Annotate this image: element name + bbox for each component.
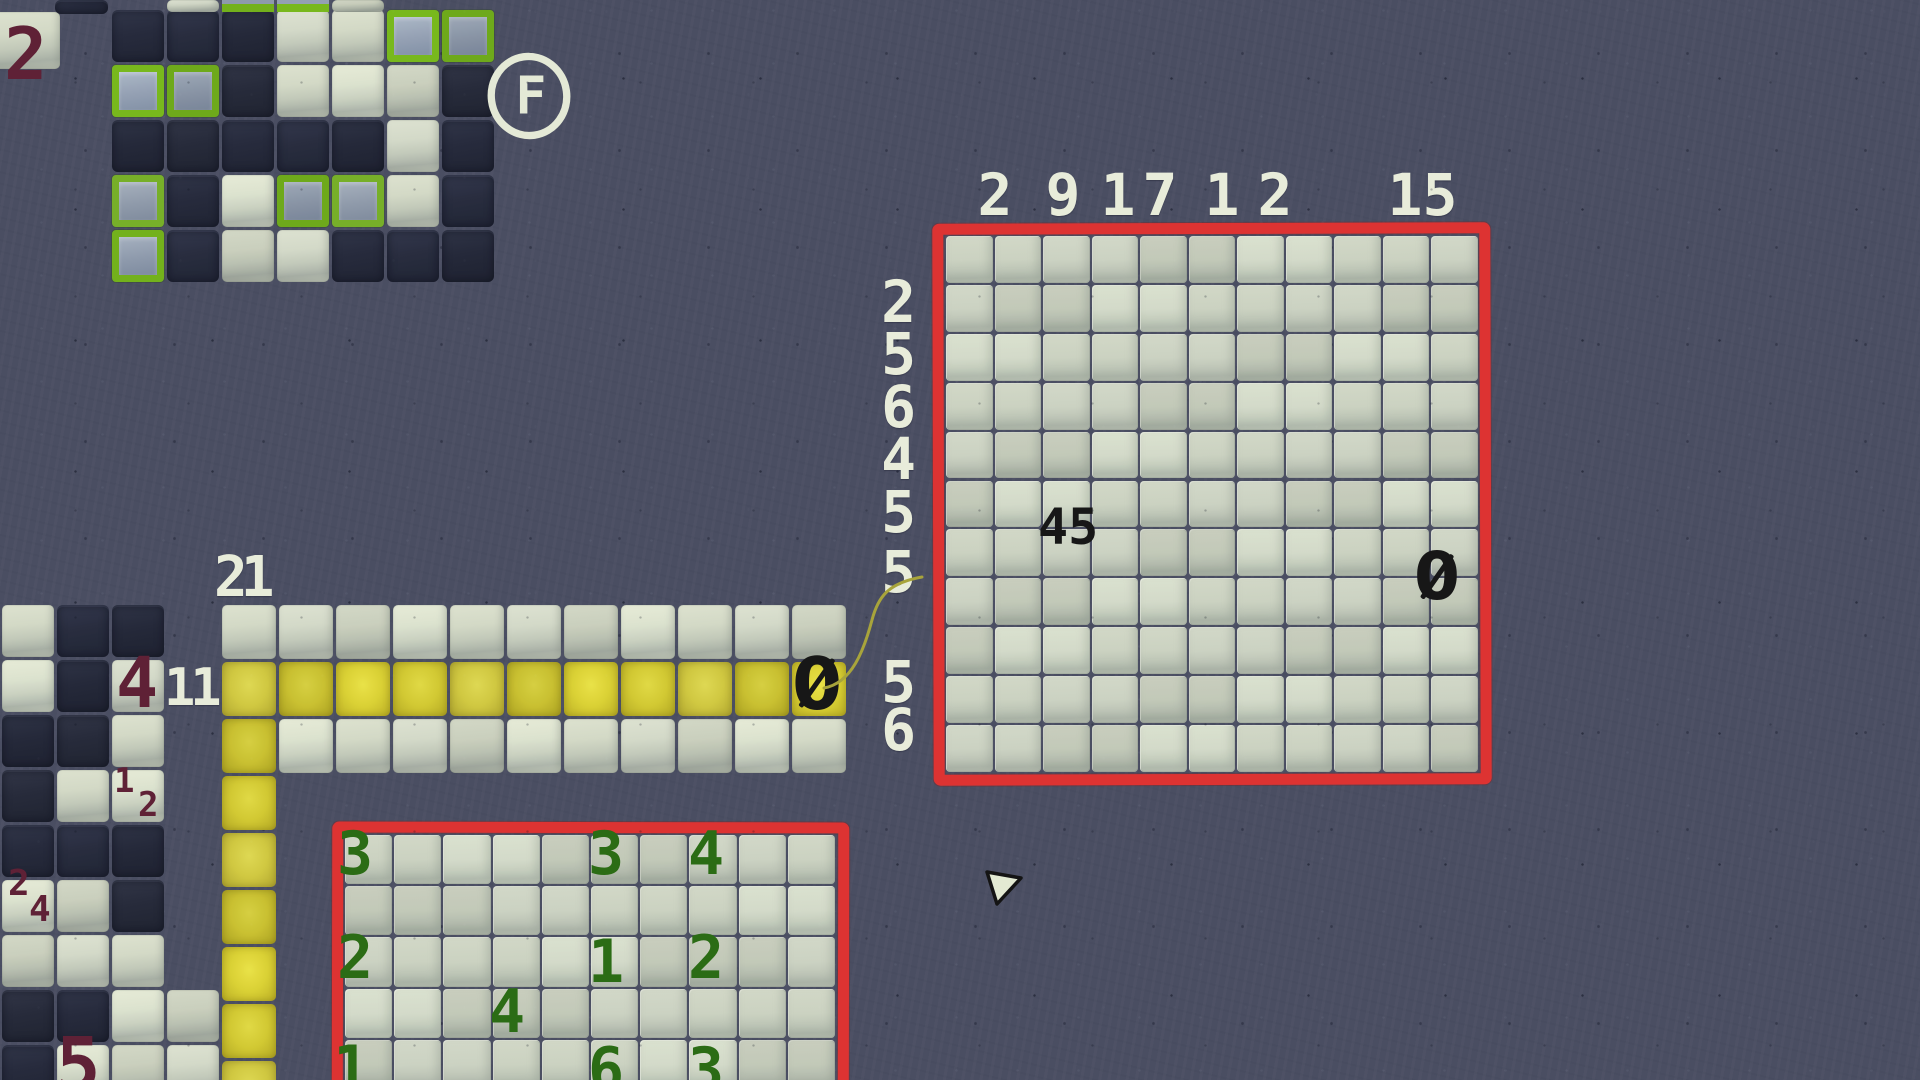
strip-board-cell-r0c8[interactable]: [678, 605, 732, 659]
big-board-cell-r5c4[interactable]: [1140, 481, 1187, 528]
strip-board-cell-r2c2[interactable]: [336, 719, 390, 773]
strip-board-cell-r2c10[interactable]: [792, 719, 846, 773]
bottom-board-cell-r1c9[interactable]: [788, 886, 835, 935]
big-board-cell-r2c1[interactable]: [995, 334, 1042, 381]
left-board-cell-r4c2[interactable]: [112, 825, 164, 877]
bottom-board-cell-r1c6[interactable]: [640, 886, 687, 935]
big-board-cell-r6c4[interactable]: [1140, 529, 1187, 576]
big-board-cell-r5c0[interactable]: [946, 481, 993, 528]
big-board-cell-r10c1[interactable]: [995, 725, 1042, 772]
strip-board-cell-r2c9[interactable]: [735, 719, 789, 773]
left-board-cell-r8c0[interactable]: [2, 1045, 54, 1080]
bottom-board-cell-r1c8[interactable]: [739, 886, 786, 935]
big-board-cell-r9c5[interactable]: [1189, 676, 1236, 723]
top-left-board-cell-r3c5[interactable]: [387, 175, 439, 227]
top-left-board-cell-r0c4[interactable]: [332, 10, 384, 62]
yellow-path-column-cell-r3c0[interactable]: [222, 947, 276, 1001]
top-left-board-extra-4[interactable]: [277, 0, 329, 12]
top-left-board-cell-r4c0[interactable]: [112, 230, 164, 282]
top-left-board-cell-r3c6[interactable]: [442, 175, 494, 227]
left-board-cell-r7c0[interactable]: [2, 990, 54, 1042]
bottom-board-cell-r2c6[interactable]: [640, 937, 687, 986]
big-board-cell-r0c5[interactable]: [1189, 236, 1236, 283]
bottom-board-cell-r4c8[interactable]: [739, 1040, 786, 1080]
left-board-cell-r0c0[interactable]: [2, 605, 54, 657]
big-board-cell-r3c7[interactable]: [1286, 383, 1333, 430]
bottom-board-cell-r3c0[interactable]: [345, 989, 392, 1038]
strip-board-cell-r1c0[interactable]: [222, 662, 276, 716]
big-board-cell-r1c7[interactable]: [1286, 285, 1333, 332]
clue-4-left-board: 4: [116, 648, 158, 718]
big-board-cell-r2c5[interactable]: [1189, 334, 1236, 381]
left-board-cell-r1c0[interactable]: [2, 660, 54, 712]
big-board-cell-r3c8[interactable]: [1334, 383, 1381, 430]
bottom-board-cell-r1c2[interactable]: [443, 886, 490, 935]
big-board-cell-r2c9[interactable]: [1383, 334, 1430, 381]
clue-pair-1: 1: [114, 764, 134, 798]
strip-board-cell-r1c5[interactable]: [507, 662, 561, 716]
top-left-board-cell-r0c2[interactable]: [222, 10, 274, 62]
bottom-board-cell-r2c2[interactable]: [443, 937, 490, 986]
big-board-cell-r5c9[interactable]: [1383, 481, 1430, 528]
top-left-board-cell-r1c4[interactable]: [332, 65, 384, 117]
left-board-cell-r1c1[interactable]: [57, 660, 109, 712]
strip-board-cell-r1c2[interactable]: [336, 662, 390, 716]
top-left-board-cell-r4c6[interactable]: [442, 230, 494, 282]
strip-board-cell-r1c9[interactable]: [735, 662, 789, 716]
big-board-left-clue-5: 5: [872, 543, 916, 601]
big-board-cell-r0c2[interactable]: [1043, 236, 1090, 283]
top-left-board-cell-r1c5[interactable]: [387, 65, 439, 117]
big-board-cell-r8c3[interactable]: [1092, 627, 1139, 674]
top-left-board-cell-r2c1[interactable]: [167, 120, 219, 172]
bottom-board-cell-r1c4[interactable]: [542, 886, 589, 935]
big-board-cell-r10c9[interactable]: [1383, 725, 1430, 772]
bottom-board-cell-r3c2[interactable]: [443, 989, 490, 1038]
big-board-top-clue-4: 1: [1200, 166, 1244, 224]
big-board-top-clue-2: 1: [1096, 166, 1140, 224]
big-board-cell-r6c1[interactable]: [995, 529, 1042, 576]
big-board-cell-r7c6[interactable]: [1237, 578, 1284, 625]
clue-11-strip-row: 11: [164, 662, 217, 714]
strip-board-cell-r0c0[interactable]: [222, 605, 276, 659]
flag-button-circle-icon: F: [483, 49, 575, 143]
bottom-board-cell-r2c4[interactable]: [542, 937, 589, 986]
yellow-path-column-cell-r2c0[interactable]: [222, 890, 276, 944]
strip-board-cell-r1c8[interactable]: [678, 662, 732, 716]
big-board-cell-r10c5[interactable]: [1189, 725, 1236, 772]
big-board-cell-r1c1[interactable]: [995, 285, 1042, 332]
big-board-cell-r7c4[interactable]: [1140, 578, 1187, 625]
top-left-board-cell-r2c0[interactable]: [112, 120, 164, 172]
strip-board-cell-r0c7[interactable]: [621, 605, 675, 659]
strip-board-cell-r2c5[interactable]: [507, 719, 561, 773]
top-left-board-cell-r3c3[interactable]: [277, 175, 329, 227]
big-board-cell-r0c4[interactable]: [1140, 236, 1187, 283]
big-board-cell-r4c2[interactable]: [1043, 432, 1090, 479]
big-board-cell-r10c10[interactable]: [1431, 725, 1478, 772]
left-board-cell-r6c0[interactable]: [2, 935, 54, 987]
big-board-cell-r4c6[interactable]: [1237, 432, 1284, 479]
big-board-cell-r4c5[interactable]: [1189, 432, 1236, 479]
big-board-cell-r9c6[interactable]: [1237, 676, 1284, 723]
clue-3-bottom-board-r0c5: 3: [588, 824, 624, 884]
big-board-cell-r9c1[interactable]: [995, 676, 1042, 723]
big-board-cell-r1c6[interactable]: [1237, 285, 1284, 332]
left-board-cell-r6c2[interactable]: [112, 935, 164, 987]
big-board-cell-r0c0[interactable]: [946, 236, 993, 283]
left-board-cell-r2c1[interactable]: [57, 715, 109, 767]
big-board-cell-r5c8[interactable]: [1334, 481, 1381, 528]
big-board-cell-r4c7[interactable]: [1286, 432, 1333, 479]
big-board-cell-r6c0[interactable]: [946, 529, 993, 576]
big-board-left-clue-7: 6: [872, 701, 916, 759]
left-board-cell-r2c0[interactable]: [2, 715, 54, 767]
big-board-cell-r1c10[interactable]: [1431, 285, 1478, 332]
top-left-board-cell-r1c0[interactable]: [112, 65, 164, 117]
bottom-board-cell-r1c3[interactable]: [493, 886, 540, 935]
big-board-cell-r2c6[interactable]: [1237, 334, 1284, 381]
big-board-cell-r1c8[interactable]: [1334, 285, 1381, 332]
strip-board-cell-r2c6[interactable]: [564, 719, 618, 773]
big-board-cell-r1c0[interactable]: [946, 285, 993, 332]
big-board-cell-r0c8[interactable]: [1334, 236, 1381, 283]
top-left-board-cell-r2c2[interactable]: [222, 120, 274, 172]
left-board-cell-r3c0[interactable]: [2, 770, 54, 822]
bottom-board-cell-r4c6[interactable]: [640, 1040, 687, 1080]
bottom-board-cell-r4c2[interactable]: [443, 1040, 490, 1080]
left-board-cell-r8c2[interactable]: [112, 1045, 164, 1080]
left-board-cell-r3c1[interactable]: [57, 770, 109, 822]
clue-4-bottom-board-r0c7: 4: [688, 824, 724, 884]
big-board-cell-r2c2[interactable]: [1043, 334, 1090, 381]
strip-board-cell-r2c7[interactable]: [621, 719, 675, 773]
strip-board-cell-r2c8[interactable]: [678, 719, 732, 773]
strip-board-cell-r2c1[interactable]: [279, 719, 333, 773]
big-board-top-clue-7: 5: [1418, 166, 1462, 224]
bottom-board-cell-r0c3[interactable]: [493, 835, 540, 884]
strip-board-cell-r1c7[interactable]: [621, 662, 675, 716]
strip-board-cell-r1c1[interactable]: [279, 662, 333, 716]
clue-pair-2: 2: [138, 788, 158, 822]
big-board-cell-r3c6[interactable]: [1237, 383, 1284, 430]
left-board-cell-r7c3[interactable]: [167, 990, 219, 1042]
big-board-cell-r8c8[interactable]: [1334, 627, 1381, 674]
flag-mode-button[interactable]: F: [483, 49, 575, 143]
big-board-cell-r2c10[interactable]: [1431, 334, 1478, 381]
big-board-cell-r7c5[interactable]: [1189, 578, 1236, 625]
big-board-cell-r0c6[interactable]: [1237, 236, 1284, 283]
big-board-cell-r9c9[interactable]: [1383, 676, 1430, 723]
big-board-cell-r3c5[interactable]: [1189, 383, 1236, 430]
bottom-board-cell-r3c4[interactable]: [542, 989, 589, 1038]
top-left-board-cell-r4c5[interactable]: [387, 230, 439, 282]
clue-3-bottom-board-r4c7: 3: [688, 1040, 724, 1080]
left-board-cell-r6c1[interactable]: [57, 935, 109, 987]
big-board-cell-r8c5[interactable]: [1189, 627, 1236, 674]
top-left-board-cell-r3c4[interactable]: [332, 175, 384, 227]
big-board-top-clue-1: 9: [1041, 166, 1085, 224]
top-left-board-cell-r4c4[interactable]: [332, 230, 384, 282]
big-board-cell-r4c10[interactable]: [1431, 432, 1478, 479]
top-left-board-cell-r1c1[interactable]: [167, 65, 219, 117]
bottom-board-cell-r3c8[interactable]: [739, 989, 786, 1038]
clue-1-bottom-board-r2c5: 1: [588, 932, 624, 992]
pencil-note-45-big-board: 45: [1038, 502, 1098, 552]
pencil-note-0-strip: 0: [792, 648, 842, 720]
big-board-cell-r2c4[interactable]: [1140, 334, 1187, 381]
clue-pair-2b: 2: [8, 866, 30, 902]
clue-2-top-left-board: 2: [4, 18, 47, 90]
big-board-cell-r7c3[interactable]: [1092, 578, 1139, 625]
big-board-cell-r3c9[interactable]: [1383, 383, 1430, 430]
bottom-board-cell-r0c4[interactable]: [542, 835, 589, 884]
big-board-cell-r10c0[interactable]: [946, 725, 993, 772]
bottom-board-cell-r0c1[interactable]: [394, 835, 441, 884]
bottom-board-cell-r0c8[interactable]: [739, 835, 786, 884]
big-board-cell-r9c3[interactable]: [1092, 676, 1139, 723]
big-board-cell-r9c4[interactable]: [1140, 676, 1187, 723]
big-board-cell-r9c10[interactable]: [1431, 676, 1478, 723]
strip-board-cell-r0c6[interactable]: [564, 605, 618, 659]
big-board-cell-r6c3[interactable]: [1092, 529, 1139, 576]
big-board-cell-r0c9[interactable]: [1383, 236, 1430, 283]
big-board-cell-r4c4[interactable]: [1140, 432, 1187, 479]
big-board-cell-r3c1[interactable]: [995, 383, 1042, 430]
big-board-cell-r6c7[interactable]: [1286, 529, 1333, 576]
left-board-cell-r8c3[interactable]: [167, 1045, 219, 1080]
top-left-board-extra-1[interactable]: [55, 0, 108, 14]
big-board-cell-r9c2[interactable]: [1043, 676, 1090, 723]
left-board-cell-r0c1[interactable]: [57, 605, 109, 657]
big-board-cell-r4c9[interactable]: [1383, 432, 1430, 479]
strip-board-cell-r0c9[interactable]: [735, 605, 789, 659]
top-left-board-extra-5[interactable]: [332, 0, 384, 12]
big-board-cell-r10c7[interactable]: [1286, 725, 1333, 772]
big-board-cell-r0c1[interactable]: [995, 236, 1042, 283]
big-board-cell-r3c10[interactable]: [1431, 383, 1478, 430]
clue-21-strip-column: 21: [214, 550, 267, 606]
strip-board-cell-r0c4[interactable]: [450, 605, 504, 659]
big-board-cell-r0c3[interactable]: [1092, 236, 1139, 283]
top-left-board-cell-r2c5[interactable]: [387, 120, 439, 172]
top-left-board-cell-r0c1[interactable]: [167, 10, 219, 62]
bottom-board-cell-r3c7[interactable]: [689, 989, 736, 1038]
bottom-board-cell-r2c8[interactable]: [739, 937, 786, 986]
big-board-cell-r6c8[interactable]: [1334, 529, 1381, 576]
big-board-top-clue-3: 7: [1138, 166, 1182, 224]
big-board-cell-r4c8[interactable]: [1334, 432, 1381, 479]
strip-board-cell-r2c4[interactable]: [450, 719, 504, 773]
big-board-cell-r7c0[interactable]: [946, 578, 993, 625]
big-board-cell-r8c9[interactable]: [1383, 627, 1430, 674]
bottom-board-cell-r4c4[interactable]: [542, 1040, 589, 1080]
big-board-cell-r4c3[interactable]: [1092, 432, 1139, 479]
clue-3-bottom-board-r0c0: 3: [337, 824, 373, 884]
big-board-cell-r8c4[interactable]: [1140, 627, 1187, 674]
big-board-cell-r8c0[interactable]: [946, 627, 993, 674]
big-board-cell-r7c1[interactable]: [995, 578, 1042, 625]
big-board-cell-r1c5[interactable]: [1189, 285, 1236, 332]
big-board-cell-r5c10[interactable]: [1431, 481, 1478, 528]
yellow-path-column-cell-r5c0[interactable]: [222, 1061, 276, 1080]
top-left-board-cell-r1c2[interactable]: [222, 65, 274, 117]
clue-6-bottom-board-r4c5: 6: [588, 1040, 624, 1080]
big-board-cell-r2c3[interactable]: [1092, 334, 1139, 381]
big-board-cell-r5c3[interactable]: [1092, 481, 1139, 528]
strip-board-cell-r1c6[interactable]: [564, 662, 618, 716]
top-left-board-cell-r3c0[interactable]: [112, 175, 164, 227]
bottom-board-cell-r3c9[interactable]: [788, 989, 835, 1038]
big-board-cell-r8c2[interactable]: [1043, 627, 1090, 674]
big-board-cell-r10c4[interactable]: [1140, 725, 1187, 772]
big-board-cell-r4c0[interactable]: [946, 432, 993, 479]
top-left-board-cell-r4c3[interactable]: [277, 230, 329, 282]
big-board-cell-r7c2[interactable]: [1043, 578, 1090, 625]
big-board-cell-r6c6[interactable]: [1237, 529, 1284, 576]
big-board-cell-r1c2[interactable]: [1043, 285, 1090, 332]
pencil-note-0-big-board: 0: [1414, 544, 1460, 610]
bottom-board-cell-r3c1[interactable]: [394, 989, 441, 1038]
big-board-cell-r3c4[interactable]: [1140, 383, 1187, 430]
big-board-cell-r2c8[interactable]: [1334, 334, 1381, 381]
strip-board-cell-r1c3[interactable]: [393, 662, 447, 716]
bottom-board-cell-r1c1[interactable]: [394, 886, 441, 935]
puzzle-canvas: 2211141224545003342124163291712152564555…: [0, 0, 1920, 1080]
big-board-cell-r9c8[interactable]: [1334, 676, 1381, 723]
strip-board-cell-r2c3[interactable]: [393, 719, 447, 773]
top-left-board-cell-r3c2[interactable]: [222, 175, 274, 227]
big-board-cell-r0c10[interactable]: [1431, 236, 1478, 283]
big-board-top-clue-5: 2: [1253, 166, 1297, 224]
top-left-board-cell-r2c4[interactable]: [332, 120, 384, 172]
big-board-cell-r2c7[interactable]: [1286, 334, 1333, 381]
left-board-cell-r5c1[interactable]: [57, 880, 109, 932]
cursor-pointer: [987, 872, 1021, 904]
big-board-cell-r1c9[interactable]: [1383, 285, 1430, 332]
big-board-cell-r3c0[interactable]: [946, 383, 993, 430]
big-board-cell-r3c3[interactable]: [1092, 383, 1139, 430]
strip-board-cell-r1c4[interactable]: [450, 662, 504, 716]
top-left-board-extra-2[interactable]: [167, 0, 219, 12]
big-board-cell-r8c10[interactable]: [1431, 627, 1478, 674]
bottom-board-cell-r0c2[interactable]: [443, 835, 490, 884]
left-board-cell-r7c2[interactable]: [112, 990, 164, 1042]
big-board-cell-r2c0[interactable]: [946, 334, 993, 381]
bottom-board-cell-r2c1[interactable]: [394, 937, 441, 986]
big-board-cell-r9c0[interactable]: [946, 676, 993, 723]
top-left-board-cell-r1c3[interactable]: [277, 65, 329, 117]
bottom-board-cell-r2c9[interactable]: [788, 937, 835, 986]
bottom-board-cell-r0c6[interactable]: [640, 835, 687, 884]
flag-button-letter: F: [515, 66, 546, 126]
big-board-cell-r10c6[interactable]: [1237, 725, 1284, 772]
strip-board-cell-r0c3[interactable]: [393, 605, 447, 659]
top-left-board-cell-r2c3[interactable]: [277, 120, 329, 172]
clue-4-bottom-board-r3c3: 4: [489, 982, 525, 1042]
top-left-board-cell-r0c3[interactable]: [277, 10, 329, 62]
big-board-cell-r1c3[interactable]: [1092, 285, 1139, 332]
bottom-board-cell-r0c9[interactable]: [788, 835, 835, 884]
strip-board-cell-r0c2[interactable]: [336, 605, 390, 659]
big-board-cell-r0c7[interactable]: [1286, 236, 1333, 283]
bottom-board-cell-r3c6[interactable]: [640, 989, 687, 1038]
left-board-cell-r5c2[interactable]: [112, 880, 164, 932]
big-board-cell-r5c1[interactable]: [995, 481, 1042, 528]
top-left-board-cell-r0c0[interactable]: [112, 10, 164, 62]
left-board-cell-r4c1[interactable]: [57, 825, 109, 877]
bottom-board-cell-r4c1[interactable]: [394, 1040, 441, 1080]
big-board-cell-r10c2[interactable]: [1043, 725, 1090, 772]
big-board-cell-r8c7[interactable]: [1286, 627, 1333, 674]
clue-2-bottom-board-r2c0: 2: [337, 928, 373, 988]
big-board-cell-r8c1[interactable]: [995, 627, 1042, 674]
top-left-board-cell-r4c2[interactable]: [222, 230, 274, 282]
yellow-path-column-cell-r1c0[interactable]: [222, 833, 276, 887]
big-board-cell-r1c4[interactable]: [1140, 285, 1187, 332]
big-board-cell-r5c5[interactable]: [1189, 481, 1236, 528]
big-board-cell-r5c6[interactable]: [1237, 481, 1284, 528]
big-board-cell-r10c8[interactable]: [1334, 725, 1381, 772]
big-board-cell-r10c3[interactable]: [1092, 725, 1139, 772]
big-board-cell-r9c7[interactable]: [1286, 676, 1333, 723]
clue-5-bottom-left: 5: [56, 1028, 101, 1080]
big-board-cell-r7c8[interactable]: [1334, 578, 1381, 625]
yellow-path-column-cell-r0c0[interactable]: [222, 776, 276, 830]
big-board-cell-r7c7[interactable]: [1286, 578, 1333, 625]
yellow-path-column-cell-r4c0[interactable]: [222, 1004, 276, 1058]
strip-board-cell-r0c5[interactable]: [507, 605, 561, 659]
clue-2-bottom-board-r2c7: 2: [688, 928, 724, 988]
big-board-top-clue-0: 2: [973, 166, 1017, 224]
top-left-board-cell-r3c1[interactable]: [167, 175, 219, 227]
top-left-board-cell-r4c1[interactable]: [167, 230, 219, 282]
strip-board-cell-r0c1[interactable]: [279, 605, 333, 659]
big-board-left-clue-4: 5: [872, 483, 916, 541]
big-board-cell-r8c6[interactable]: [1237, 627, 1284, 674]
top-left-board-extra-3[interactable]: [222, 0, 274, 12]
strip-board-cell-r2c0[interactable]: [222, 719, 276, 773]
big-board-cell-r4c1[interactable]: [995, 432, 1042, 479]
big-board-cell-r3c2[interactable]: [1043, 383, 1090, 430]
clue-pair-4: 4: [29, 892, 51, 928]
big-board-cell-r5c7[interactable]: [1286, 481, 1333, 528]
bottom-board-cell-r4c9[interactable]: [788, 1040, 835, 1080]
clue-1-bottom-board-r4c0: 1: [333, 1038, 369, 1080]
top-left-board-cell-r0c5[interactable]: [387, 10, 439, 62]
big-board-cell-r6c5[interactable]: [1189, 529, 1236, 576]
